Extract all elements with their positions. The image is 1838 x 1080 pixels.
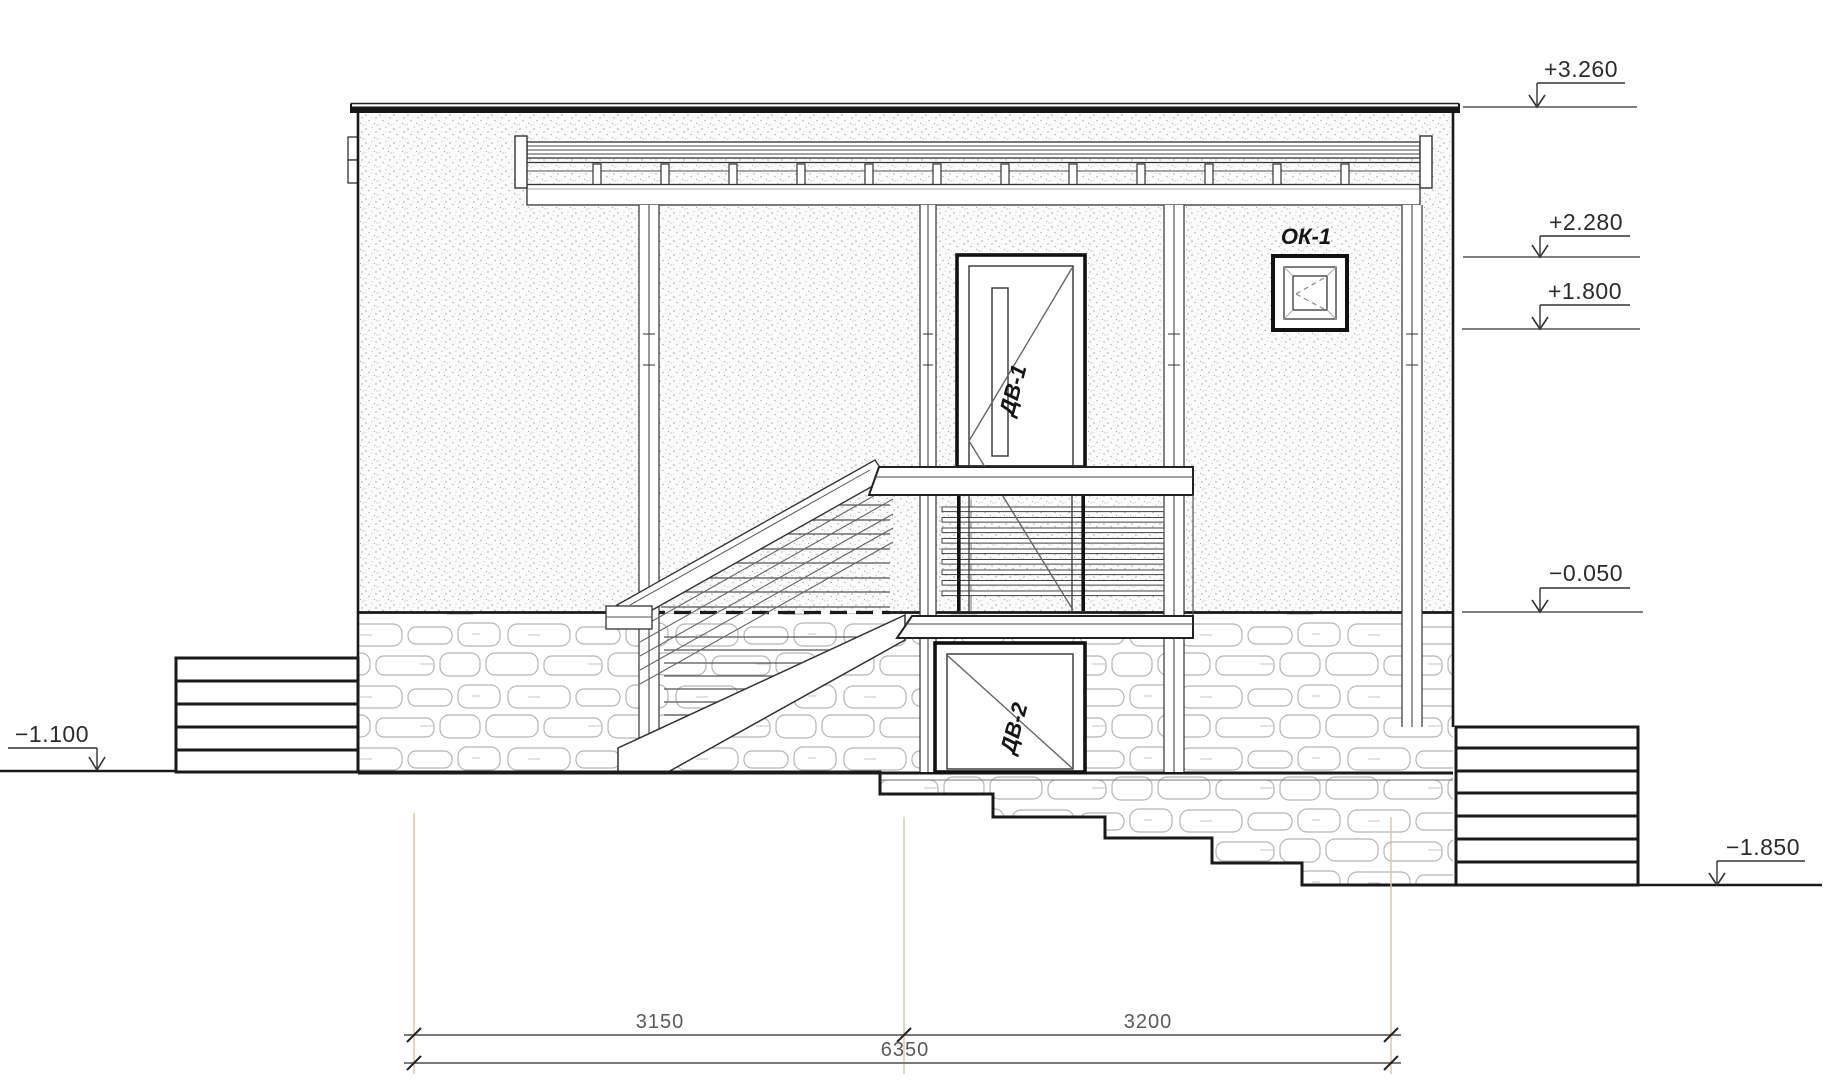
elevation-marker-ground-right: −1.850 — [1709, 834, 1805, 885]
right-steps — [1456, 727, 1638, 885]
elevation-mark-floor: −0.050 — [1549, 560, 1623, 586]
dim-right-label: 3200 — [1124, 1011, 1173, 1033]
elevation-mark-ground-left: −1.100 — [15, 721, 89, 747]
left-steps — [176, 658, 358, 772]
elevation-marker-canopy: +2.280 — [1463, 209, 1640, 257]
elevation-marker-floor: −0.050 — [1462, 560, 1643, 612]
door-dv1 — [957, 255, 1085, 467]
roof-cap — [351, 104, 1459, 114]
canopy-right-cap — [1420, 136, 1432, 188]
canopy-left-cap — [515, 136, 527, 188]
elevation-mark-window: +1.800 — [1548, 278, 1622, 304]
column — [639, 205, 659, 755]
elevation-mark-canopy: +2.280 — [1549, 209, 1623, 235]
elevation-mark-roof: +3.260 — [1544, 56, 1618, 82]
elevation-sheet: ОК-1 ДВ-1 — [0, 0, 1838, 1080]
elevation-marker-ground-left: −1.100 — [8, 721, 105, 770]
door-dv2: ДВ-2 — [935, 643, 1085, 772]
column — [1402, 205, 1422, 727]
elevation-marker-window: +1.800 — [1462, 278, 1640, 329]
window-label: ОК-1 — [1281, 224, 1331, 249]
canopy-railing — [515, 136, 1432, 205]
plinth-masonry — [358, 613, 1453, 885]
elevation-marker-roof: +3.260 — [1463, 56, 1637, 107]
elevation-drawing: ОК-1 ДВ-1 — [0, 0, 1838, 1080]
lower-landing-slab — [897, 616, 1193, 638]
dim-total-label: 6350 — [881, 1039, 930, 1061]
elevation-mark-ground-right: −1.850 — [1726, 834, 1800, 860]
wall-bracket — [348, 137, 358, 183]
dim-left-label: 3150 — [636, 1011, 685, 1033]
